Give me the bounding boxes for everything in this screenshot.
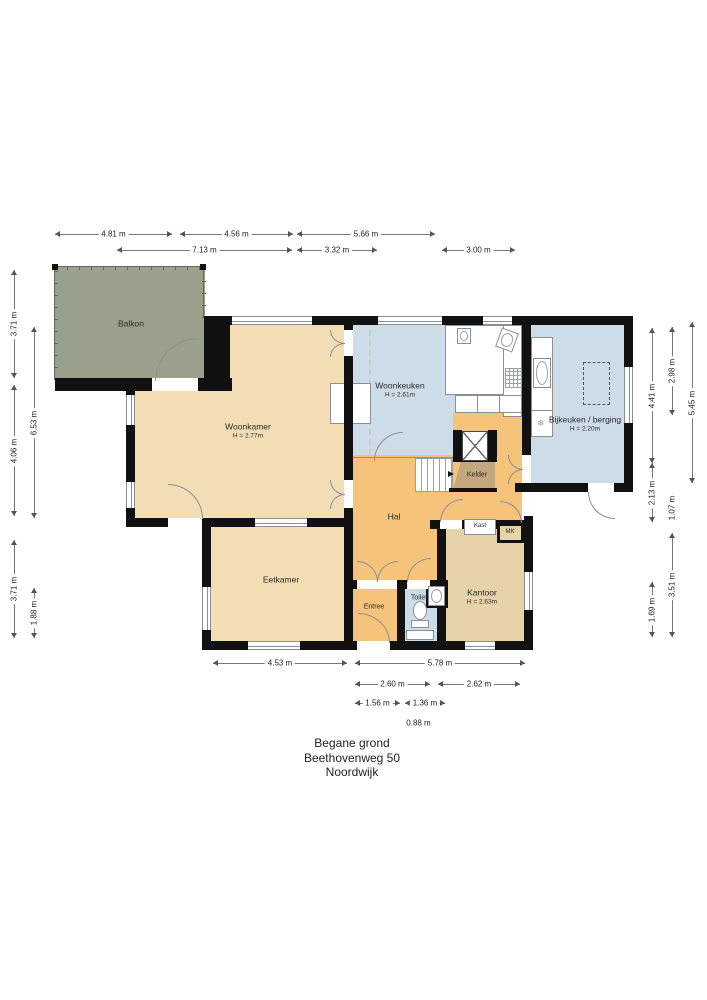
toilet-bowl [413,601,427,620]
dim-bottom-1: 4.53 m [213,659,347,668]
door-gap-bijkeuken-exterior [588,483,614,492]
dim-right-1: 2.98 m [668,327,677,415]
dim-bottom-5: 1.56 m [355,699,400,708]
room-kantoor [446,529,524,641]
window-woonkeuken-top [378,316,442,325]
wall-bottom-main [202,641,455,650]
label-kelder: Kelder [467,470,487,479]
hal-kitchen-boundary-line [353,457,453,458]
plan-title: Begane grond Beethovenweg 50 Noordwijk [232,736,472,780]
hatch-wall-left [453,430,462,462]
room-woonkamer [135,388,344,518]
label-woonkamer: WoonkamerH = 2.77m [225,421,271,440]
window-woonkamer-left-2 [126,482,135,508]
dim-bottom-3: 2.60 m [355,680,430,689]
wall-bijkeuken-bottom [515,483,633,492]
window-woonkamer-top [232,316,312,325]
label-toilet: Toilet [411,593,427,602]
label-mk: MK [506,529,515,537]
dim-left-5: 1.88 m [30,588,39,638]
label-kantoor: KantoorH = 2.63m [467,587,497,606]
label-woonkeuken: WoonkeukenH = 2.61m [375,380,424,399]
title-street: Beethovenweg 50 [232,751,472,766]
dim-right-7: 1.69 m [648,582,657,637]
dim-left-1: 3.71 m [10,270,19,378]
dim-left-3: 4.06 m [10,385,19,516]
dim-top-3: 5.66 m [297,230,435,239]
kelder-direction-arrow [448,471,454,477]
title-city: Noordwijk [232,765,472,780]
label-entree: Entree [364,602,385,611]
bijkeuken-dashed-area [583,362,610,405]
kelder-bottom-wall [449,488,497,492]
dim-right-6: 3.51 m [668,533,677,637]
dim-bottom-2: 5.78 m [355,659,525,668]
dim-top-1: 4.81 m [55,230,172,239]
dim-bottom-7: 0.88 m [407,719,430,728]
washbasin [428,586,445,606]
wall-balkon-bottom-right [198,378,232,391]
label-eetkamer: Eetkamer [263,574,299,585]
balkon-rail-top-ticks [55,266,205,270]
wall-eetkamer-left [202,518,211,650]
kitchen-sink-icon [457,328,471,344]
dim-top-5: 3.32 m [297,246,377,255]
door-gap-woonkamer-hal [344,480,353,508]
label-bijkeuken: Bijkeuken / bergingH = 2.20m [549,414,621,433]
dim-right-4: 2.13 m [648,463,657,522]
bijkeuken-sink-icon [533,358,551,388]
dim-top-6: 3.00 m [442,246,515,255]
window-eetkamer-left [202,587,211,630]
dim-left-4: 3.71 m [10,540,19,638]
door-gap-woonkamer-keuken [344,330,353,356]
kitchen-cabinet-divider [499,396,500,412]
floorplan-canvas: ❄ [0,0,707,1000]
door-gap-hal-bijkeuken [522,455,531,483]
kitchen-cabinet-row [455,395,522,413]
door-gap-eetkamer [168,518,202,527]
snowflake-icon: ❄ [537,419,545,428]
dim-bottom-4: 2.62 m [438,680,520,689]
kitchen-cabinet-divider [477,396,478,412]
title-floor: Begane grond [232,736,472,751]
window-interior-woonkamer-eetkamer [255,518,307,527]
wall-toilet-left [397,584,405,650]
wall-balkon-bottom-left [55,378,152,391]
dim-right-5: 1.07 m [668,493,677,523]
wall-keuken-bijkeuken [522,316,531,455]
door-arc-bijkeuken-exterior [588,492,615,519]
toilet-tank [411,620,429,628]
dim-top-2: 4.56 m [180,230,293,239]
window-woonkamer-left-1 [126,395,135,425]
label-hal: Hal [388,511,401,522]
label-kast: Kast [474,523,486,531]
window-bijkeuken-right [624,367,633,423]
dim-bottom-6: 1.36 m [405,699,445,708]
hatch-wall-right [488,430,497,462]
window-eetkamer-bottom [248,641,300,650]
dim-right-2: 4.41 m [648,328,657,463]
cellar-hatch-x-box [462,431,488,461]
window-kitchen-top [483,316,512,325]
balkon-corner-post-right [200,264,206,270]
balkon-rail-right-ticks [202,267,206,318]
room-woonkamer-upper [230,325,344,388]
toilet-mat [406,630,434,640]
dim-top-4: 7.13 m [117,246,292,255]
balkon-rail-left-ticks [54,267,58,380]
label-balkon: Balkon [118,318,144,329]
wall-woonkamer-south [126,518,353,527]
dim-right-3: 5.45 m [688,322,697,483]
stove-icon [505,368,522,388]
balkon-corner-post-left [52,264,58,270]
dim-left-2: 6.53 m [30,327,39,518]
window-kantoor-right [524,572,533,610]
window-kantoor-bottom [465,641,495,650]
